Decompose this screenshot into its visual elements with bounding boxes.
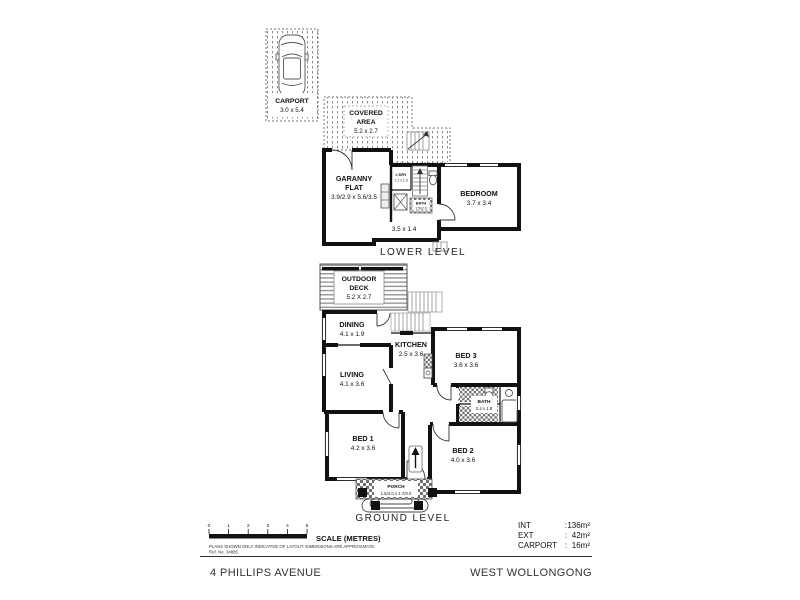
covered-area-label-1: COVERED xyxy=(349,110,383,117)
area-int-label: INT xyxy=(518,521,531,530)
scale-tick-1: 1 xyxy=(227,523,230,529)
deck-label-1: OUTDOOR xyxy=(342,276,377,283)
porch-label: PORCH xyxy=(387,484,405,490)
carport-dims: 3.0 x 5.4 xyxy=(280,107,304,114)
floor-plan-drawing: CARPORT 3.0 x 5.4 COVERED AREA 5.2 x 2.7 xyxy=(0,0,800,600)
dining-label: DINING xyxy=(339,320,365,329)
bed3-dims: 3.6 x 3.6 xyxy=(454,362,479,369)
bath-dims: 2.4 x 1.8 xyxy=(476,406,493,411)
scale-tick-3: 3 xyxy=(266,523,269,529)
scale-tick-4: 4 xyxy=(286,523,289,529)
dining-dims: 4.1 x 1.9 xyxy=(340,331,365,338)
bedroom-label: BEDROOM xyxy=(460,189,498,198)
bed1-label: BED 1 xyxy=(352,434,373,443)
scale-tick-5: 5 xyxy=(306,523,309,529)
laundry-label: L'DRY xyxy=(395,173,407,177)
area-carport-sep: : xyxy=(565,541,567,550)
floor-plan-page: CARPORT 3.0 x 5.4 COVERED AREA 5.2 x 2.7 xyxy=(0,0,800,600)
kitchen-bench-icon xyxy=(424,354,432,378)
granny-flat-label-2: FLAT xyxy=(345,183,363,192)
covered-area-dims: 5.2 x 2.7 xyxy=(354,128,378,135)
disclaimer-text: PLANS SHOWN ONLY INDICATIVE OF LAYOUT. D… xyxy=(209,544,375,549)
lower-bath-label: BATH xyxy=(416,202,427,206)
granny-flat-dims: 3.9/2.9 x 5.6/3.5 xyxy=(331,194,377,201)
area-int-value: 136m² xyxy=(567,521,590,530)
shower-icon xyxy=(394,194,407,210)
scale-label: SCALE (METRES) xyxy=(316,534,381,543)
scale-bar-fill xyxy=(209,534,307,539)
granny-flat-label-1: GARANNY xyxy=(336,174,373,183)
living-dims: 4.1 x 3.6 xyxy=(340,381,365,388)
street-address: 4 PHILLIPS AVENUE xyxy=(210,567,321,579)
porch-area: PORCH 1.5/4.0 x 1.7/3.0 xyxy=(356,479,437,512)
lower-bath: BATH 1.5x2.0 xyxy=(410,198,432,213)
kitchenette-icon xyxy=(381,184,389,208)
area-ext-value: 42m² xyxy=(572,531,591,540)
living-label: LIVING xyxy=(340,370,364,379)
deck-dims: 5.2 X 2.7 xyxy=(347,294,372,301)
area-carport-label: CARPORT xyxy=(518,541,557,550)
porch-dims: 1.5/4.0 x 1.7/3.0 xyxy=(381,491,412,496)
bed2-label: BED 2 xyxy=(452,446,473,455)
carport-label: CARPORT xyxy=(275,98,309,105)
kitchen-label: KITCHEN xyxy=(395,340,427,349)
bed1-dims: 4.2 x 3.6 xyxy=(351,445,376,452)
entry-door-arrow-icon xyxy=(409,446,422,472)
kitchen-dims: 2.5 x 3.6 xyxy=(399,351,424,358)
car-icon xyxy=(276,35,308,96)
lower-stairs-icon xyxy=(413,166,428,196)
area-carport-value: 16m² xyxy=(572,541,591,550)
outdoor-stair-icon xyxy=(407,131,429,150)
scale-tick-0: 0 xyxy=(208,523,211,529)
area-ext-label: EXT xyxy=(518,531,534,540)
lower-level-title: LOWER LEVEL xyxy=(380,247,466,258)
lower-hall-dims: 3.5 x 1.4 xyxy=(392,226,417,233)
bath-label: BATH xyxy=(478,399,492,405)
reference-number: Ref. No. 34885 xyxy=(209,550,239,555)
suburb: WEST WOLLONGONG xyxy=(470,567,592,579)
bedroom-dims: 3.7 x 3.4 xyxy=(467,200,492,207)
covered-area-label-2: AREA xyxy=(356,119,375,126)
ground-level-title: GROUND LEVEL xyxy=(355,513,450,524)
scale-tick-2: 2 xyxy=(247,523,250,529)
area-ext-sep: : xyxy=(565,531,567,540)
deck-label-2: DECK xyxy=(349,285,368,292)
carport-area: CARPORT 3.0 x 5.4 xyxy=(266,29,318,121)
bed2-dims: 4.0 x 3.6 xyxy=(451,457,476,464)
lower-bath-dims: 1.5x2.0 xyxy=(415,207,427,211)
toilet-icon xyxy=(429,171,437,185)
laundry-dims: 1.1 x 1.3 xyxy=(394,179,407,183)
bed3-label: BED 3 xyxy=(455,351,476,360)
